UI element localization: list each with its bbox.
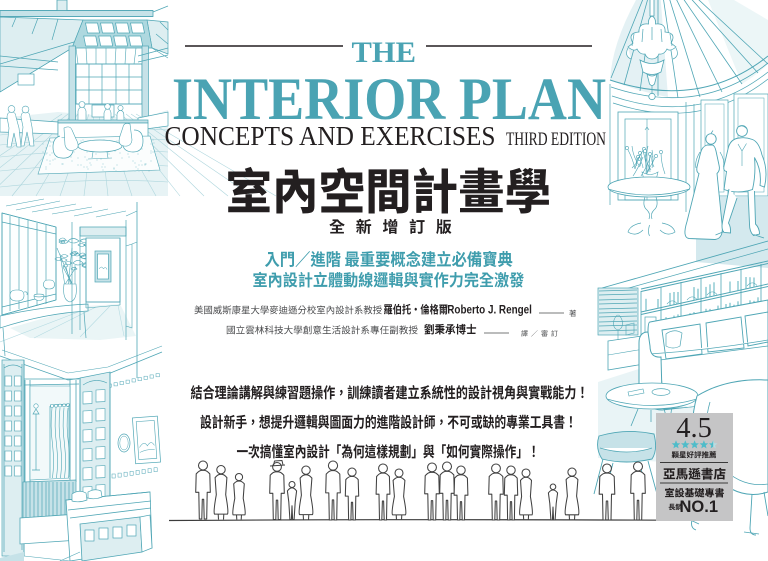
svg-text:4.5: 4.5	[676, 413, 712, 444]
svg-text:CONCEPTS AND EXERCISES: CONCEPTS AND EXERCISES	[165, 121, 496, 151]
svg-text:NO.1: NO.1	[680, 498, 719, 516]
svg-text:THE: THE	[352, 36, 417, 69]
svg-text:THIRD EDITION: THIRD EDITION	[506, 129, 606, 150]
svg-text:Roberto J. Rengel: Roberto J. Rengel	[447, 305, 532, 317]
